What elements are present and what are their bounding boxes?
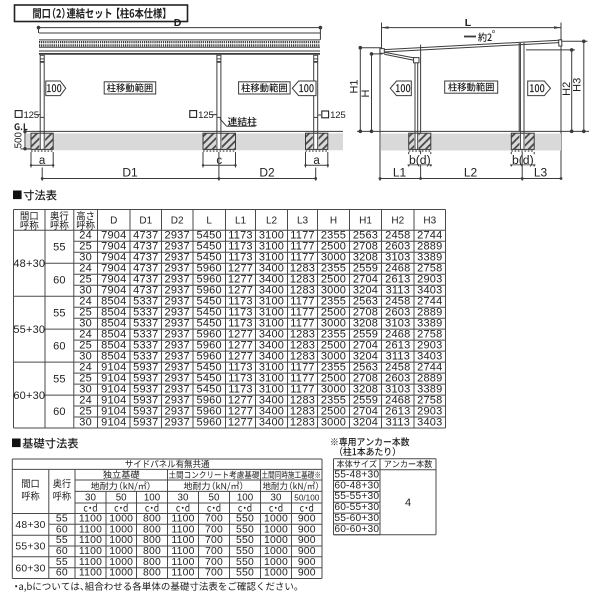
svg-text:55: 55 [56, 535, 68, 546]
svg-text:900: 900 [298, 568, 316, 579]
svg-text:1000: 1000 [264, 546, 288, 557]
svg-text:800: 800 [143, 513, 161, 524]
svg-text:L1: L1 [235, 216, 247, 227]
svg-text:1100: 1100 [171, 535, 194, 546]
svg-text:L: L [206, 216, 212, 227]
svg-text:1100: 1100 [79, 524, 102, 535]
svg-text:1100: 1100 [79, 513, 102, 524]
svg-text:900: 900 [298, 513, 316, 524]
svg-text:b(d): b(d) [409, 153, 431, 167]
svg-text:700: 700 [205, 546, 223, 557]
svg-text:60+30: 60+30 [13, 390, 45, 402]
svg-text:1100: 1100 [171, 568, 194, 579]
svg-text:1000: 1000 [264, 557, 288, 568]
svg-text:L1: L1 [393, 166, 407, 180]
svg-text:D: D [110, 216, 117, 227]
svg-text:125: 125 [24, 110, 39, 121]
svg-text:800: 800 [143, 557, 161, 568]
svg-text:700: 700 [205, 524, 223, 535]
svg-text:125: 125 [330, 110, 345, 121]
svg-text:30: 30 [178, 493, 189, 504]
svg-text:30: 30 [271, 493, 282, 504]
svg-text:60-60+30: 60-60+30 [334, 524, 379, 535]
svg-text:48+30: 48+30 [15, 520, 45, 531]
svg-text:1000: 1000 [109, 524, 133, 535]
svg-text:50: 50 [116, 493, 127, 504]
svg-text:1100: 1100 [79, 546, 102, 557]
svg-text:550: 550 [236, 524, 254, 535]
svg-text:50/100: 50/100 [294, 494, 319, 503]
svg-text:700: 700 [205, 535, 223, 546]
svg-text:9104: 9104 [101, 416, 126, 428]
svg-text:1000: 1000 [264, 513, 288, 524]
svg-text:H3: H3 [423, 216, 436, 227]
svg-text:1000: 1000 [109, 557, 133, 568]
svg-text:1100: 1100 [171, 546, 194, 557]
svg-text:800: 800 [143, 524, 161, 535]
svg-text:b(d): b(d) [512, 153, 534, 167]
svg-text:L2: L2 [464, 166, 478, 180]
svg-text:1100: 1100 [79, 557, 102, 568]
svg-text:60: 60 [56, 524, 68, 535]
svg-text:1000: 1000 [264, 568, 288, 579]
svg-text:1000: 1000 [109, 513, 133, 524]
svg-text:D2: D2 [259, 166, 275, 180]
svg-text:D1: D1 [122, 166, 138, 180]
svg-text:H1: H1 [348, 79, 360, 93]
svg-text:D2: D2 [171, 216, 184, 227]
svg-text:60: 60 [53, 406, 66, 418]
svg-text:800: 800 [143, 568, 161, 579]
svg-text:H: H [360, 89, 372, 97]
svg-text:L3: L3 [534, 166, 548, 180]
svg-text:1000: 1000 [109, 535, 133, 546]
svg-text:125: 125 [198, 110, 213, 121]
svg-text:550: 550 [236, 557, 254, 568]
svg-text:H3: H3 [571, 78, 583, 92]
svg-text:55: 55 [53, 307, 66, 319]
svg-text:60-55+30: 60-55+30 [334, 502, 379, 513]
svg-text:1100: 1100 [79, 568, 102, 579]
svg-text:60: 60 [56, 546, 68, 557]
svg-text:100: 100 [237, 493, 254, 504]
svg-text:60-48+30: 60-48+30 [334, 480, 379, 491]
svg-text:a: a [39, 155, 46, 167]
svg-text:550: 550 [236, 513, 254, 524]
svg-text:50: 50 [209, 493, 220, 504]
svg-text:900: 900 [298, 535, 316, 546]
svg-text:H1: H1 [359, 216, 372, 227]
svg-text:700: 700 [205, 568, 223, 579]
svg-text:550: 550 [236, 568, 254, 579]
svg-text:D: D [174, 17, 182, 29]
svg-text:1100: 1100 [171, 524, 194, 535]
svg-text:55: 55 [53, 242, 66, 254]
svg-text:900: 900 [298, 524, 316, 535]
svg-text:700: 700 [205, 513, 223, 524]
svg-text:800: 800 [143, 535, 161, 546]
svg-text:55-60+30: 55-60+30 [334, 513, 379, 524]
svg-text:3400: 3400 [259, 416, 284, 428]
svg-text:800: 800 [143, 546, 161, 557]
svg-text:60+30: 60+30 [15, 563, 45, 574]
svg-text:L3: L3 [297, 216, 309, 227]
svg-text:1100: 1100 [171, 513, 194, 524]
svg-text:1000: 1000 [109, 546, 133, 557]
svg-text:55: 55 [56, 557, 68, 568]
svg-text:900: 900 [298, 557, 316, 568]
svg-text:3113: 3113 [386, 416, 410, 428]
svg-text:2937: 2937 [165, 416, 190, 428]
svg-text:1100: 1100 [171, 557, 194, 568]
svg-text:500: 500 [14, 131, 25, 148]
svg-text:5937: 5937 [133, 416, 158, 428]
svg-text:1100: 1100 [79, 535, 102, 546]
svg-text:30: 30 [79, 416, 92, 428]
svg-text:30: 30 [85, 493, 96, 504]
svg-text:100: 100 [144, 493, 161, 504]
svg-text:55-48+30: 55-48+30 [334, 470, 379, 481]
svg-text:1283: 1283 [290, 416, 315, 428]
svg-text:3000: 3000 [321, 416, 346, 428]
svg-text:3204: 3204 [353, 416, 378, 428]
svg-text:55+30: 55+30 [13, 324, 45, 336]
svg-text:5960: 5960 [197, 416, 222, 428]
svg-text:900: 900 [298, 546, 316, 557]
svg-text:700: 700 [205, 557, 223, 568]
svg-text:1277: 1277 [228, 416, 253, 428]
svg-text:L2: L2 [266, 216, 278, 227]
svg-text:60: 60 [53, 340, 66, 352]
svg-text:3403: 3403 [417, 416, 442, 428]
svg-text:550: 550 [236, 546, 254, 557]
svg-text:55: 55 [56, 513, 68, 524]
svg-text:H: H [330, 216, 337, 227]
svg-text:1000: 1000 [264, 535, 288, 546]
svg-text:°: ° [492, 30, 496, 41]
svg-text:48+30: 48+30 [13, 258, 45, 270]
svg-text:a: a [313, 155, 320, 167]
svg-text:L: L [465, 17, 472, 29]
svg-text:60: 60 [53, 274, 66, 286]
svg-text:H2: H2 [391, 216, 404, 227]
svg-text:1000: 1000 [264, 524, 288, 535]
svg-text:60: 60 [56, 568, 68, 579]
svg-text:55: 55 [53, 373, 66, 385]
svg-text:55+30: 55+30 [15, 542, 45, 553]
svg-text:4: 4 [405, 497, 411, 509]
svg-text:55-55+30: 55-55+30 [334, 491, 379, 502]
svg-text:D1: D1 [139, 216, 152, 227]
svg-text:1000: 1000 [109, 568, 133, 579]
svg-text:550: 550 [236, 535, 254, 546]
